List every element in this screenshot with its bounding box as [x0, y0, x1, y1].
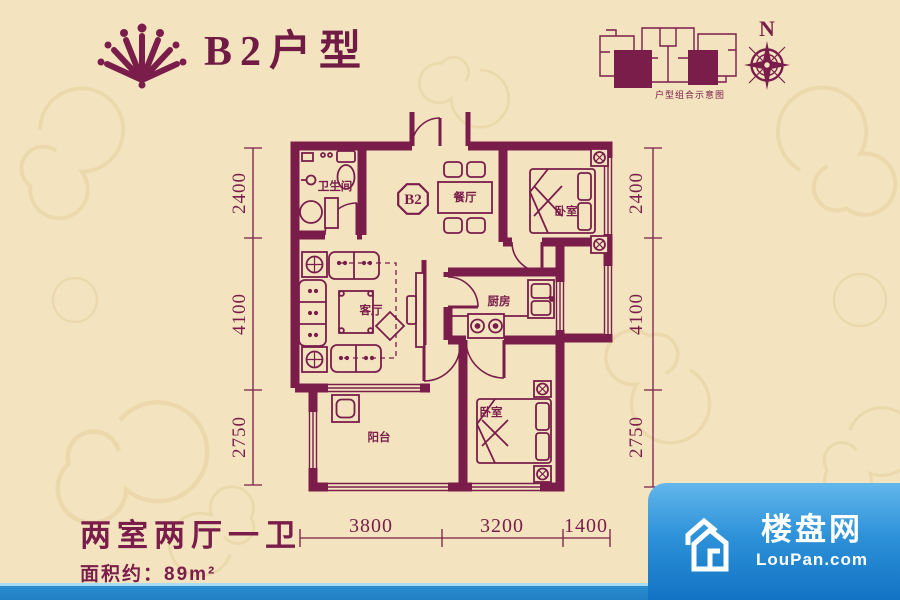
bedside-lamp-icon	[534, 381, 551, 397]
stove-icon	[468, 314, 504, 338]
dim-label: 3800	[349, 515, 393, 537]
dimension-line-bottom: 3800 3200 1400	[300, 515, 610, 547]
tv-cabinet-icon	[416, 273, 424, 347]
bedside-lamp-icon	[591, 149, 608, 166]
pillow-icon	[578, 173, 591, 200]
compass-north-label: N	[759, 16, 775, 41]
room-label-dining: 餐厅	[453, 190, 477, 204]
unit-badge-label: B2	[404, 192, 422, 208]
key-plan-highlight-unit	[614, 50, 652, 88]
brand-ornament-icon	[96, 14, 188, 90]
kitchen-fixtures	[452, 280, 554, 338]
area-text: 面积约：89m²	[80, 559, 302, 586]
dim-label: 4100	[626, 293, 647, 335]
chair-icon	[444, 218, 462, 233]
floorplan-page: 户型组合示意图 N	[0, 0, 900, 600]
bath-counter-icon	[325, 198, 338, 228]
room-label-bedroom-master: 卧室	[555, 204, 578, 218]
room-label-balcony: 阳台	[368, 430, 391, 444]
unit-summary: 两室两厅一卫 面积约：89m²	[80, 518, 302, 586]
dim-label: 1400	[564, 515, 608, 537]
dim-label: 3200	[480, 515, 524, 537]
dimension-line-right: 2400 4100 2750	[626, 148, 662, 487]
chair-icon	[467, 162, 485, 177]
dim-label: 2750	[229, 416, 250, 458]
loupan-watermark: 楼盘网 LouPan.com	[648, 483, 900, 600]
key-plan-caption: 户型组合示意图	[655, 89, 725, 100]
dimension-line-left: 2400 4100 2750	[229, 148, 262, 485]
fixture-icon	[307, 176, 316, 185]
chair-icon	[444, 162, 462, 177]
second-bedroom-furniture	[477, 381, 551, 482]
key-plan: 户型组合示意图	[600, 28, 736, 100]
brand-name: 楼盘网	[761, 513, 863, 547]
sofa-icon	[329, 252, 379, 279]
pillow-icon	[578, 203, 591, 230]
bedside-lamp-icon	[534, 466, 551, 482]
room-label-bedroom-second: 卧室	[480, 405, 503, 419]
toilet-icon	[337, 151, 355, 162]
key-plan-highlight-unit	[688, 50, 718, 85]
floorplan: B2	[229, 112, 662, 547]
page-title: B2户型	[204, 15, 369, 89]
brand-domain: LouPan.com	[756, 550, 868, 570]
chair-icon	[467, 218, 485, 233]
shelf-icon	[302, 153, 313, 161]
bedside-lamp-icon	[591, 236, 608, 253]
corner-table-icon	[302, 252, 327, 277]
loupan-house-icon	[680, 511, 746, 573]
dim-label: 2750	[626, 416, 647, 458]
room-label-kitchen: 厨房	[488, 294, 511, 308]
washbasin-icon	[300, 201, 322, 223]
corner-table-icon	[302, 347, 327, 372]
sofa-icon	[299, 280, 326, 346]
layout-type: 两室两厅一卫	[80, 518, 302, 554]
compass-icon: N	[744, 16, 790, 90]
master-bedroom-furniture	[530, 149, 608, 253]
room-label-living: 客厅	[359, 303, 383, 317]
pillow-icon	[536, 403, 549, 430]
dim-label: 4100	[229, 293, 250, 335]
dim-label: 2400	[229, 172, 250, 214]
pillow-icon	[536, 433, 549, 460]
dim-label: 2400	[626, 172, 647, 214]
room-label-bathroom: 卫生间	[318, 179, 353, 193]
balcony-fixtures	[332, 395, 359, 422]
header: B2户型	[96, 14, 369, 90]
tv-icon	[407, 296, 416, 324]
unit-badge: B2	[398, 184, 428, 214]
